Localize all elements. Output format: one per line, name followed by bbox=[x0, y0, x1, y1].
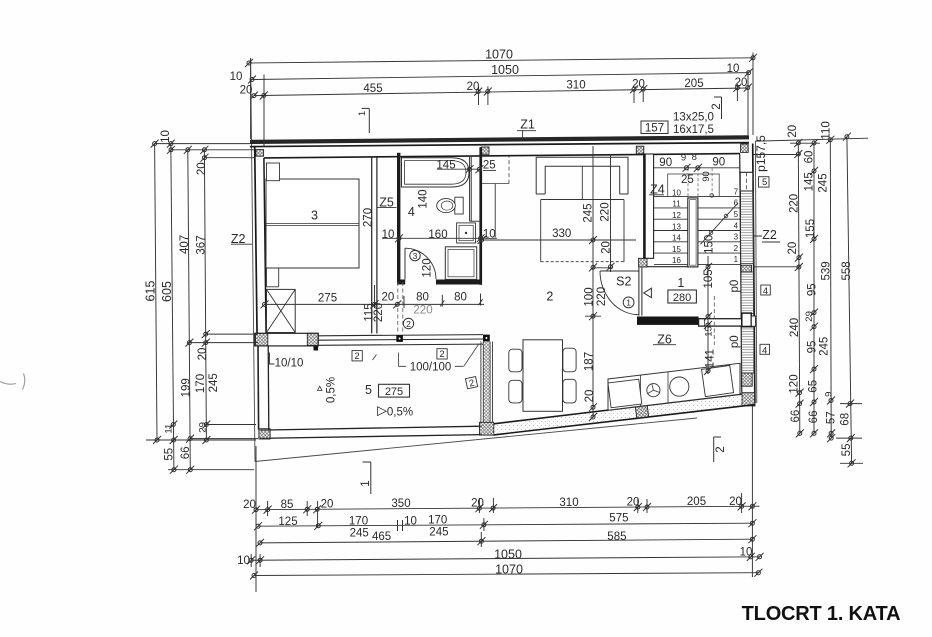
svg-text:150: 150 bbox=[704, 235, 716, 254]
svg-text:10: 10 bbox=[672, 188, 681, 197]
svg-text:205: 205 bbox=[684, 78, 703, 90]
svg-text:310: 310 bbox=[566, 80, 585, 92]
svg-text:10: 10 bbox=[382, 229, 395, 241]
svg-text:465: 465 bbox=[372, 531, 391, 543]
svg-text:20: 20 bbox=[787, 125, 799, 138]
svg-text:9: 9 bbox=[823, 392, 834, 397]
svg-text:330: 330 bbox=[552, 228, 571, 240]
svg-text:2: 2 bbox=[468, 378, 475, 390]
svg-text:15: 15 bbox=[672, 245, 681, 254]
svg-text:p157,5: p157,5 bbox=[754, 135, 768, 172]
svg-text:20: 20 bbox=[197, 348, 209, 361]
svg-text:Z2: Z2 bbox=[231, 232, 246, 246]
svg-text:Z6: Z6 bbox=[657, 333, 672, 347]
svg-text:Z4: Z4 bbox=[650, 182, 665, 196]
svg-text:275: 275 bbox=[385, 386, 403, 398]
svg-text:140: 140 bbox=[418, 189, 430, 208]
svg-text:605: 605 bbox=[160, 281, 174, 302]
svg-text:220: 220 bbox=[413, 305, 432, 317]
svg-text:155: 155 bbox=[805, 219, 817, 238]
svg-text:170: 170 bbox=[349, 516, 368, 528]
svg-text:11: 11 bbox=[672, 200, 681, 209]
svg-text:20: 20 bbox=[471, 498, 484, 510]
svg-text:13x25,0: 13x25,0 bbox=[673, 112, 714, 124]
svg-text:245: 245 bbox=[208, 373, 220, 392]
svg-text:10: 10 bbox=[740, 547, 753, 559]
svg-text:220: 220 bbox=[373, 303, 385, 322]
svg-text:20: 20 bbox=[240, 85, 253, 97]
svg-text:141: 141 bbox=[704, 349, 716, 368]
svg-text:575: 575 bbox=[609, 513, 628, 525]
svg-text:1050: 1050 bbox=[494, 548, 522, 562]
svg-text:66: 66 bbox=[180, 447, 192, 460]
svg-text:13: 13 bbox=[672, 222, 681, 231]
svg-text:455: 455 bbox=[363, 83, 382, 95]
svg-text:187: 187 bbox=[584, 352, 596, 371]
svg-text:80: 80 bbox=[454, 292, 467, 304]
svg-text:85: 85 bbox=[281, 499, 294, 511]
svg-text:157: 157 bbox=[645, 123, 664, 135]
svg-text:20: 20 bbox=[321, 499, 334, 511]
svg-text:10: 10 bbox=[230, 71, 243, 83]
svg-text:20: 20 bbox=[243, 499, 256, 511]
svg-text:TLOCRT 1. KATA: TLOCRT 1. KATA bbox=[742, 603, 901, 625]
svg-text:4: 4 bbox=[763, 286, 768, 297]
svg-text:2: 2 bbox=[354, 351, 359, 362]
svg-text:12: 12 bbox=[672, 211, 681, 220]
svg-text:2: 2 bbox=[715, 446, 727, 452]
svg-text:125: 125 bbox=[278, 516, 297, 528]
svg-text:585: 585 bbox=[607, 531, 626, 543]
svg-text:3: 3 bbox=[734, 233, 739, 242]
svg-text:145: 145 bbox=[436, 160, 455, 172]
svg-text:2: 2 bbox=[406, 319, 411, 329]
svg-text:3: 3 bbox=[311, 209, 318, 223]
svg-text:55: 55 bbox=[841, 444, 853, 457]
svg-text:110: 110 bbox=[821, 121, 833, 139]
svg-text:66: 66 bbox=[808, 411, 820, 424]
svg-text:615: 615 bbox=[144, 281, 158, 302]
svg-text:280: 280 bbox=[673, 292, 691, 304]
svg-text:199: 199 bbox=[181, 378, 193, 397]
svg-text:4: 4 bbox=[734, 221, 739, 230]
svg-text:270: 270 bbox=[363, 208, 375, 227]
svg-text:p0: p0 bbox=[729, 335, 741, 348]
svg-text:20: 20 bbox=[601, 241, 613, 254]
svg-text:10: 10 bbox=[404, 515, 417, 527]
svg-text:2: 2 bbox=[734, 244, 739, 253]
svg-text:1: 1 bbox=[677, 276, 684, 290]
svg-text:240: 240 bbox=[789, 318, 801, 337]
svg-text:4: 4 bbox=[762, 345, 767, 356]
svg-text:220: 220 bbox=[599, 202, 611, 221]
svg-text:14: 14 bbox=[672, 234, 681, 243]
svg-text:1: 1 bbox=[734, 255, 739, 264]
svg-text:170: 170 bbox=[195, 374, 207, 393]
svg-text:310: 310 bbox=[559, 497, 578, 509]
svg-text:7: 7 bbox=[734, 187, 739, 196]
svg-text:5: 5 bbox=[365, 383, 372, 397]
svg-text:Z5: Z5 bbox=[379, 196, 394, 210]
svg-text:95: 95 bbox=[807, 341, 819, 354]
svg-text:1: 1 bbox=[626, 298, 631, 308]
svg-text:20: 20 bbox=[627, 497, 640, 509]
svg-text:20: 20 bbox=[382, 292, 395, 304]
svg-text:9: 9 bbox=[681, 153, 686, 164]
svg-text:1: 1 bbox=[360, 480, 372, 486]
svg-text:10: 10 bbox=[160, 130, 172, 143]
svg-text:120: 120 bbox=[422, 258, 434, 277]
svg-text:275: 275 bbox=[318, 293, 337, 305]
svg-text:120: 120 bbox=[789, 374, 801, 393]
svg-text:90: 90 bbox=[659, 157, 672, 169]
svg-text:29: 29 bbox=[197, 422, 208, 433]
svg-text:68: 68 bbox=[840, 413, 852, 426]
svg-text:2: 2 bbox=[439, 349, 444, 360]
svg-text:220: 220 bbox=[596, 287, 608, 306]
svg-text:10: 10 bbox=[727, 63, 740, 75]
svg-text:558: 558 bbox=[841, 261, 853, 280]
svg-text:20: 20 bbox=[632, 79, 645, 91]
svg-text:11: 11 bbox=[163, 424, 174, 434]
svg-text:55: 55 bbox=[164, 448, 176, 461]
svg-text:0,5%: 0,5% bbox=[326, 377, 338, 403]
svg-text:2: 2 bbox=[711, 103, 723, 109]
svg-text:170: 170 bbox=[428, 515, 447, 527]
svg-text:20: 20 bbox=[196, 162, 208, 175]
svg-text:245: 245 bbox=[818, 337, 830, 356]
svg-text:245: 245 bbox=[429, 527, 448, 539]
svg-text:0,5%: 0,5% bbox=[387, 407, 413, 419]
svg-text:Z1: Z1 bbox=[520, 117, 535, 131]
svg-text:20: 20 bbox=[729, 496, 742, 508]
svg-text:1050: 1050 bbox=[491, 63, 519, 77]
svg-text:3: 3 bbox=[413, 251, 418, 261]
svg-text:29: 29 bbox=[804, 311, 815, 322]
svg-text:S2: S2 bbox=[616, 275, 631, 289]
svg-text:6: 6 bbox=[734, 199, 739, 208]
svg-text:Z2: Z2 bbox=[762, 228, 777, 242]
svg-text:145: 145 bbox=[804, 172, 816, 191]
svg-text:20: 20 bbox=[735, 77, 748, 89]
svg-text:205: 205 bbox=[687, 496, 706, 508]
svg-text:66: 66 bbox=[790, 410, 802, 423]
svg-text:245: 245 bbox=[350, 528, 369, 540]
svg-text:5: 5 bbox=[734, 210, 739, 219]
svg-text:100: 100 bbox=[583, 287, 595, 306]
svg-text:20: 20 bbox=[584, 390, 596, 403]
svg-text:16: 16 bbox=[672, 256, 681, 265]
svg-text:95: 95 bbox=[807, 283, 819, 296]
svg-text:20: 20 bbox=[467, 81, 480, 93]
svg-text:10: 10 bbox=[483, 229, 496, 241]
svg-text:20: 20 bbox=[787, 242, 799, 255]
svg-text:5: 5 bbox=[762, 177, 767, 188]
svg-text:160: 160 bbox=[428, 229, 447, 241]
svg-text:539: 539 bbox=[821, 261, 833, 280]
svg-text:245: 245 bbox=[818, 173, 830, 192]
svg-text:65: 65 bbox=[807, 380, 819, 393]
svg-text:25: 25 bbox=[681, 174, 694, 186]
svg-text:90: 90 bbox=[701, 171, 712, 182]
svg-text:350: 350 bbox=[391, 498, 410, 510]
svg-text:2: 2 bbox=[546, 290, 553, 304]
svg-text:25: 25 bbox=[483, 160, 496, 172]
svg-text:10: 10 bbox=[237, 555, 250, 567]
svg-text:245: 245 bbox=[583, 203, 595, 222]
svg-text:16x17,5: 16x17,5 bbox=[673, 124, 714, 136]
svg-text:407: 407 bbox=[179, 235, 191, 254]
svg-text:60: 60 bbox=[804, 151, 816, 164]
svg-text:80: 80 bbox=[416, 292, 429, 304]
svg-text:1070: 1070 bbox=[495, 563, 523, 577]
svg-text:105: 105 bbox=[703, 269, 715, 288]
svg-text:100/100: 100/100 bbox=[410, 362, 452, 374]
svg-text:57: 57 bbox=[825, 411, 837, 424]
svg-text:15: 15 bbox=[703, 326, 714, 337]
svg-text:10/10: 10/10 bbox=[275, 358, 304, 370]
svg-text:p0: p0 bbox=[729, 280, 741, 293]
svg-text:1070: 1070 bbox=[485, 48, 513, 62]
svg-text:8: 8 bbox=[692, 152, 697, 163]
svg-text:367: 367 bbox=[196, 235, 208, 254]
svg-text:90: 90 bbox=[712, 157, 725, 169]
svg-text:1: 1 bbox=[357, 111, 368, 116]
svg-text:4: 4 bbox=[408, 205, 415, 219]
svg-text:220: 220 bbox=[789, 194, 801, 213]
